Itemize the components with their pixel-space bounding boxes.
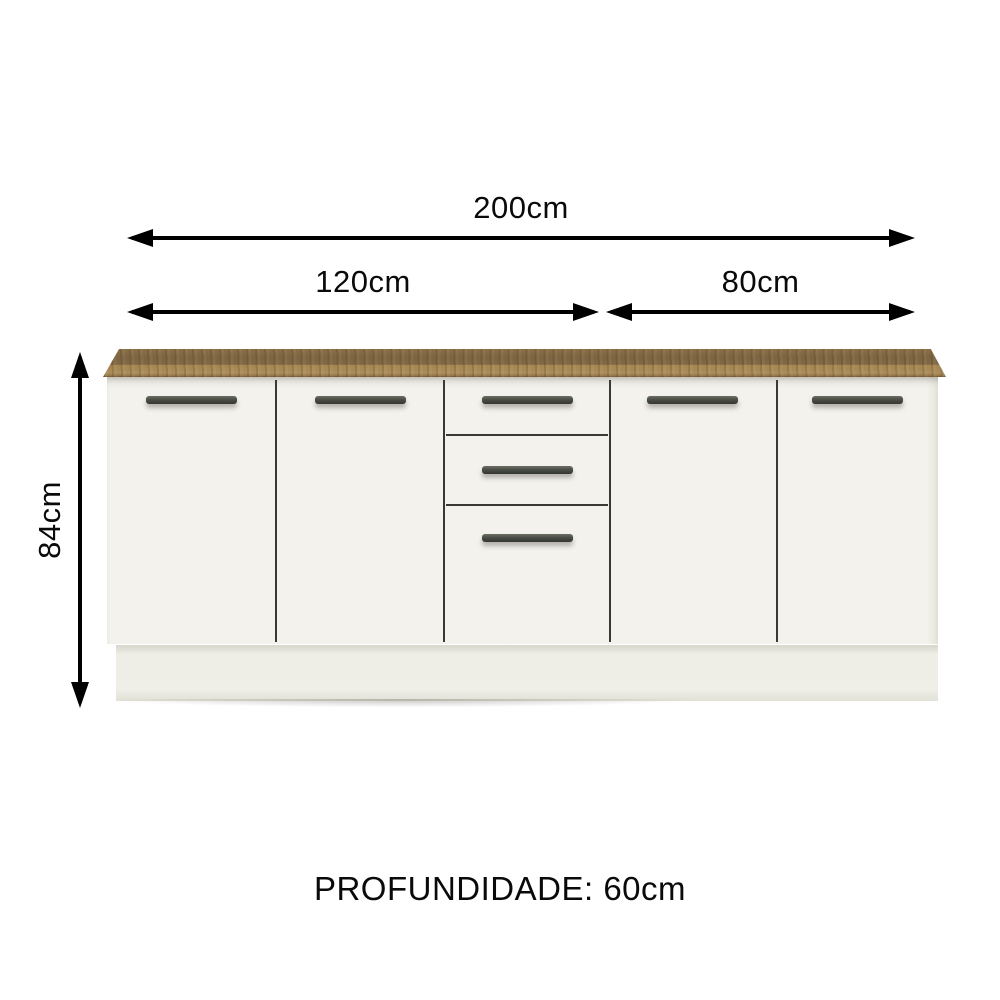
right-section-width-arrow xyxy=(606,303,915,321)
drawer-separator-line xyxy=(446,434,608,436)
door-2-handle xyxy=(315,396,406,404)
dimension-diagram: 200cm 120cm 80cm 84cm xyxy=(0,0,1000,1000)
door-2-panel xyxy=(277,377,443,644)
right-section-width-label: 80cm xyxy=(606,264,915,300)
left-section-width-arrow xyxy=(127,303,599,321)
arrow-down-head-icon xyxy=(71,682,89,708)
drawer-2-handle xyxy=(482,466,573,474)
drawer-separator-line xyxy=(446,504,608,506)
arrow-shaft xyxy=(132,310,594,314)
door-gap-line xyxy=(776,380,778,642)
countertop xyxy=(103,349,946,377)
drawer-3-handle xyxy=(482,534,573,542)
door-3-panel xyxy=(611,377,776,644)
door-4-panel xyxy=(778,377,938,644)
door-gap-line xyxy=(609,380,611,642)
depth-label: PROFUNDIDADE: 60cm xyxy=(0,870,1000,908)
drawer-stack-panel xyxy=(445,377,609,644)
arrow-shaft xyxy=(611,310,910,314)
arrow-right-head-icon xyxy=(573,303,599,321)
height-arrow xyxy=(71,352,89,708)
arrow-shaft xyxy=(132,236,910,240)
arrow-right-head-icon xyxy=(889,303,915,321)
total-width-label: 200cm xyxy=(127,190,915,226)
door-gap-line xyxy=(443,380,445,642)
drawer-1-handle xyxy=(482,396,573,404)
arrow-shaft xyxy=(78,357,82,703)
arrow-right-head-icon xyxy=(889,229,915,247)
ground-shadow xyxy=(104,699,950,711)
door-3-handle xyxy=(647,396,738,404)
plinth-base xyxy=(116,645,938,701)
door-1-handle xyxy=(146,396,237,404)
left-section-width-label: 120cm xyxy=(127,264,599,300)
door-gap-line xyxy=(275,380,277,642)
door-4-handle xyxy=(812,396,903,404)
door-1-panel xyxy=(107,377,275,644)
height-label: 84cm xyxy=(32,450,72,590)
total-width-arrow xyxy=(127,229,915,247)
